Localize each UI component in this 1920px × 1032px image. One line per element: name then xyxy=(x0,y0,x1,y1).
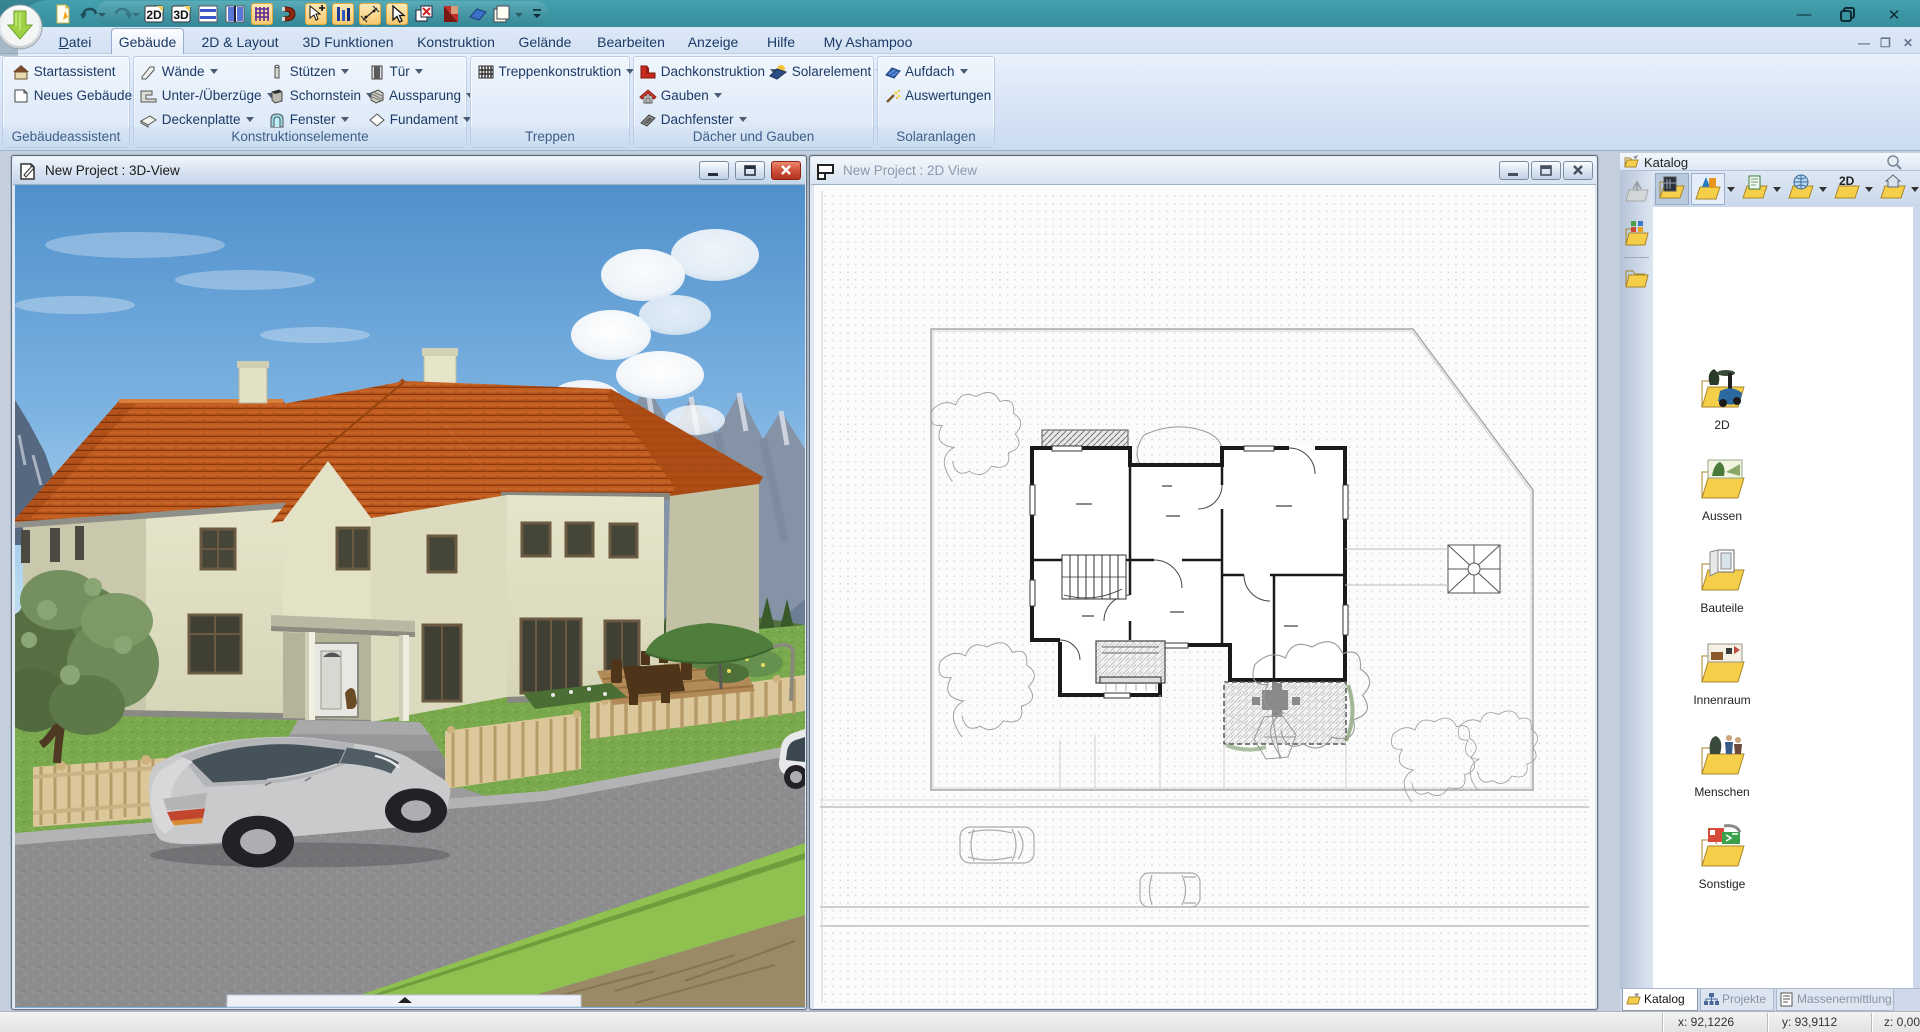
svg-text:2D: 2D xyxy=(1839,174,1855,188)
svg-text:3D: 3D xyxy=(173,8,189,22)
svg-text:2D: 2D xyxy=(146,8,162,22)
